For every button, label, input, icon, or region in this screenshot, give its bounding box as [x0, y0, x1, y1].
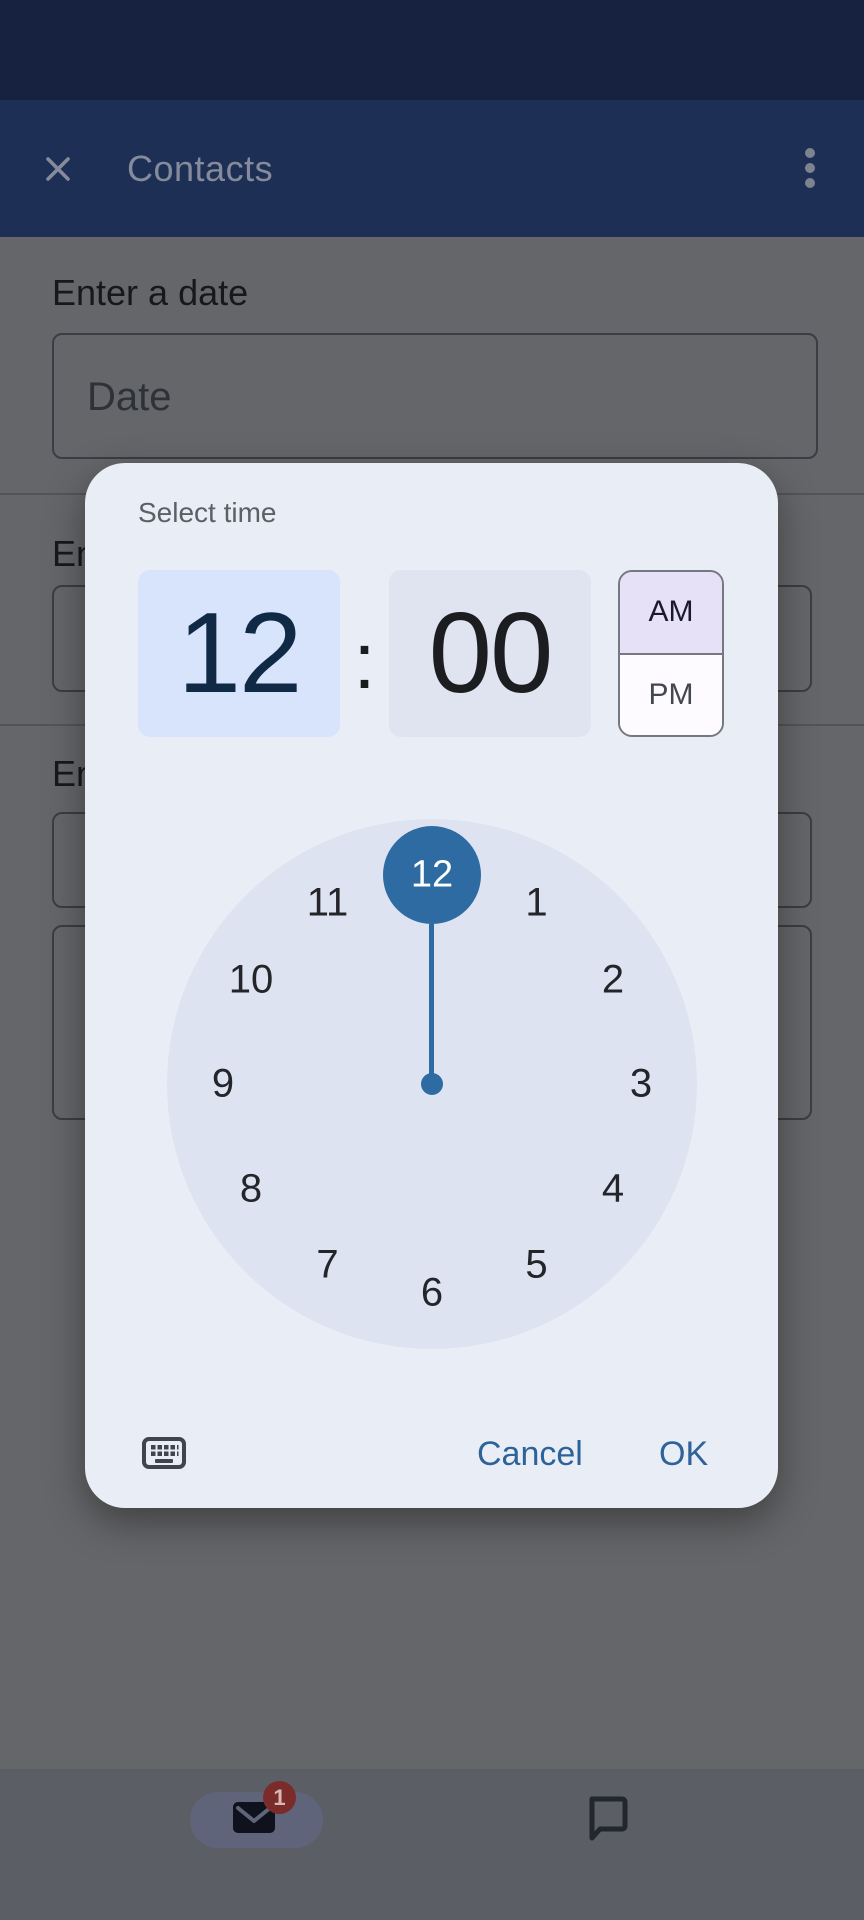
clock-number-5[interactable]: 5: [525, 1242, 547, 1287]
clock-number-1[interactable]: 1: [525, 881, 547, 926]
clock-number-10[interactable]: 10: [229, 957, 274, 1002]
keyboard-icon: [142, 1437, 186, 1469]
phone-screen: Contacts Enter a date Date En En 1 Selec…: [0, 0, 864, 1920]
hour-field[interactable]: 12: [138, 570, 340, 737]
time-colon: :: [340, 570, 389, 737]
clock-number-9[interactable]: 9: [212, 1062, 234, 1107]
chat-bubble-icon[interactable]: [583, 1793, 631, 1843]
app-bar: Contacts: [0, 100, 864, 237]
dialog-title: Select time: [138, 497, 277, 529]
bottom-nav-bar: [0, 1769, 864, 1920]
status-bar: [0, 0, 864, 100]
minute-field[interactable]: 00: [389, 570, 591, 737]
close-button[interactable]: [30, 145, 86, 193]
page-title: Contacts: [127, 100, 273, 237]
clock-number-6[interactable]: 6: [421, 1271, 443, 1316]
ok-button[interactable]: OK: [645, 1426, 722, 1482]
date-input[interactable]: Date: [52, 333, 818, 459]
am-button[interactable]: AM: [620, 572, 722, 655]
clock-number-12[interactable]: 12: [411, 854, 453, 897]
am-pm-toggle: AM PM: [618, 570, 724, 737]
clock-hand: [429, 924, 434, 1084]
time-picker-dialog: Select time 12 : 00 AM PM 12123456789101…: [85, 463, 778, 1508]
kebab-menu-icon: [805, 148, 815, 158]
mail-badge: 1: [263, 1781, 296, 1814]
keyboard-input-mode-button[interactable]: [131, 1425, 197, 1481]
date-field-label: Enter a date: [52, 272, 248, 314]
overflow-menu-button[interactable]: [786, 142, 834, 194]
clock-number-3[interactable]: 3: [630, 1062, 652, 1107]
mail-badge-count: 1: [273, 1785, 285, 1811]
clock-number-8[interactable]: 8: [240, 1166, 262, 1211]
x-icon: [40, 151, 76, 187]
clock-center-dot: [421, 1073, 443, 1095]
cancel-button[interactable]: Cancel: [463, 1426, 597, 1482]
pm-button[interactable]: PM: [620, 655, 722, 736]
clock-number-2[interactable]: 2: [602, 957, 624, 1002]
clock-number-11[interactable]: 11: [307, 881, 349, 926]
clock-number-4[interactable]: 4: [602, 1166, 624, 1211]
clock-face[interactable]: 121234567891011: [167, 819, 697, 1349]
clock-number-7[interactable]: 7: [316, 1242, 338, 1287]
date-input-placeholder: Date: [87, 375, 172, 420]
